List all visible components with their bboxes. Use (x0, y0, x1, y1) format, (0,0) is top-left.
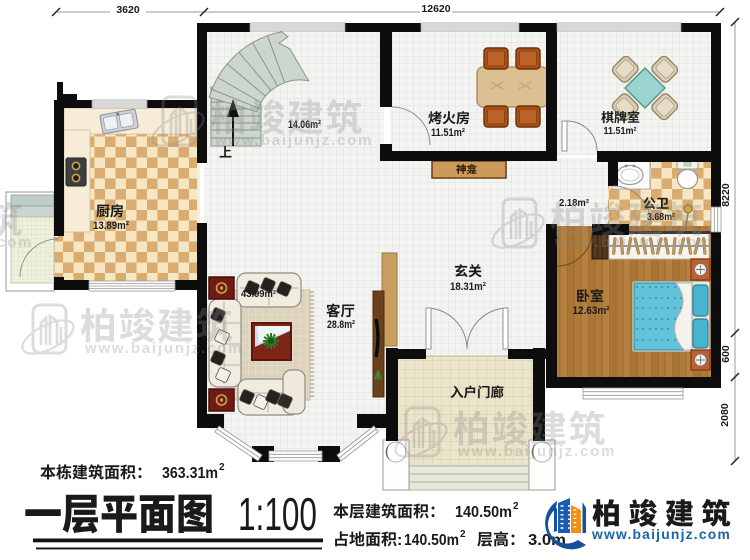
svg-text::: : (397, 532, 402, 549)
svg-text:1:100: 1:100 (238, 488, 317, 540)
svg-text:13.89m²: 13.89m² (93, 220, 129, 232)
svg-text:28.8m²: 28.8m² (327, 319, 355, 331)
svg-text:140.50m: 140.50m (404, 532, 459, 549)
svg-text:2: 2 (513, 501, 519, 512)
svg-text:43.99m²: 43.99m² (241, 288, 276, 300)
svg-text:2: 2 (460, 529, 466, 540)
svg-text:www.baijunjz.com: www.baijunjz.com (591, 527, 731, 542)
svg-text:12.63m²: 12.63m² (573, 305, 610, 317)
svg-text:18.31m²: 18.31m² (450, 281, 486, 293)
svg-text:3620: 3620 (116, 4, 140, 16)
svg-text:2: 2 (219, 462, 225, 473)
svg-text:8220: 8220 (720, 183, 732, 207)
svg-text:2080: 2080 (719, 403, 731, 427)
svg-text:363.31m: 363.31m (162, 465, 218, 482)
svg-text:11.51m²: 11.51m² (604, 125, 637, 137)
svg-text:600: 600 (720, 345, 732, 363)
svg-text:140.50m: 140.50m (455, 504, 512, 521)
svg-text:12620: 12620 (421, 3, 450, 15)
svg-text:11.51m²: 11.51m² (431, 127, 465, 139)
